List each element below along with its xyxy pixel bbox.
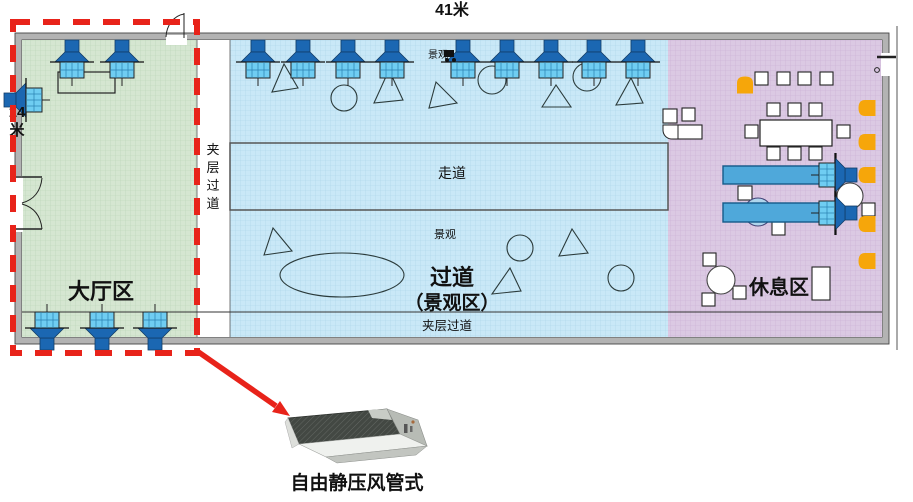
chair-square bbox=[809, 147, 822, 160]
callout-arrow-line bbox=[197, 351, 276, 406]
chair-square bbox=[738, 186, 752, 200]
rest-label: 休息区 bbox=[748, 275, 809, 299]
chair-square bbox=[745, 125, 758, 138]
chair-square bbox=[663, 109, 677, 123]
chair-square bbox=[777, 72, 790, 85]
chair-square bbox=[767, 103, 780, 116]
chair-square bbox=[733, 286, 746, 299]
lobby-label: 大厅区 bbox=[68, 279, 134, 304]
chair-square bbox=[788, 147, 801, 160]
chair-square bbox=[755, 72, 768, 85]
orange-chair bbox=[859, 253, 876, 269]
scenic-small-mid-label: 景观 bbox=[434, 228, 456, 241]
chair-square bbox=[798, 72, 811, 85]
top-dimension-label: 41米 bbox=[435, 0, 470, 19]
scenic-small-top-label: 景观 bbox=[428, 49, 448, 61]
orange-chair bbox=[859, 134, 876, 150]
ac-unit-label: 自由静压风管式 bbox=[290, 471, 423, 494]
bench-rect bbox=[812, 267, 830, 300]
chair-square bbox=[820, 72, 833, 85]
scenic-label-line1: 过道 bbox=[430, 265, 474, 290]
meeting-table bbox=[760, 120, 832, 146]
chair-square bbox=[703, 253, 716, 266]
chair-square bbox=[862, 203, 875, 216]
chair-square bbox=[772, 222, 785, 235]
orange-chair bbox=[859, 216, 876, 232]
orange-chair bbox=[859, 167, 876, 183]
mezzanine-bottom-label: 夹层过道 bbox=[422, 319, 473, 333]
orange-chair bbox=[859, 100, 876, 116]
chair-square bbox=[767, 147, 780, 160]
chair-square bbox=[682, 108, 695, 121]
walkway-label: 走道 bbox=[438, 165, 466, 181]
door-top bbox=[166, 13, 187, 45]
scenic-label-line2: （景观区） bbox=[404, 291, 499, 314]
floor-plan-page: 41米 bbox=[0, 0, 913, 502]
chair-square bbox=[809, 103, 822, 116]
ac-unit-photo bbox=[285, 409, 427, 463]
floor-plan-svg: 41米 bbox=[0, 0, 913, 502]
chair-square bbox=[702, 293, 715, 306]
round-table bbox=[707, 266, 735, 294]
orange-chair bbox=[737, 77, 753, 94]
chair-square bbox=[788, 103, 801, 116]
chair-square bbox=[837, 125, 850, 138]
